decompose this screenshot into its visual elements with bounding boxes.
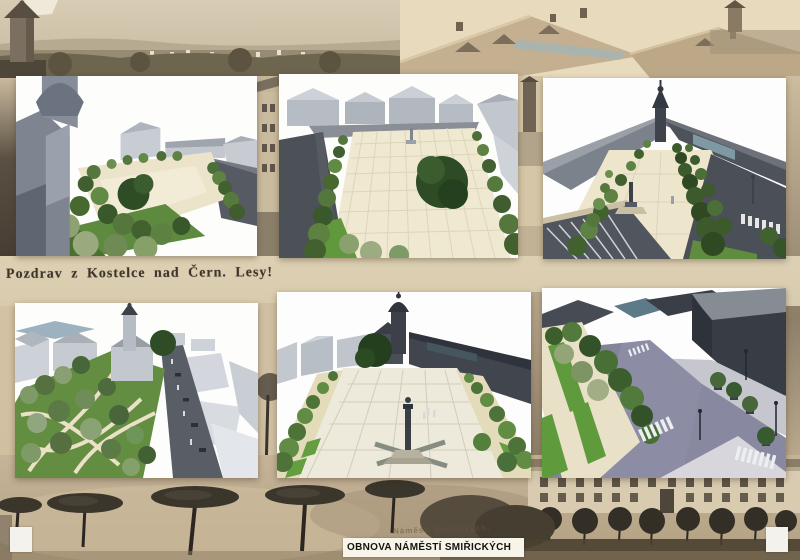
render-panel-top-center — [279, 74, 518, 258]
panel-3-illustration — [543, 78, 786, 259]
poster-title-label: OBNOVA NÁMĚSTÍ SMIŘICKÝCH — [343, 538, 524, 557]
white-patch-left — [10, 527, 32, 552]
panel-5-illustration — [277, 292, 531, 478]
render-panel-bottom-right — [542, 288, 786, 478]
render-panel-top-right — [543, 78, 786, 259]
white-patch-right — [766, 527, 788, 552]
background-tower-fragment — [518, 76, 543, 258]
render-panel-top-left — [16, 76, 257, 256]
panel-6-illustration — [542, 288, 786, 478]
poster-title: OBNOVA NÁMĚSTÍ SMIŘICKÝCH — [343, 542, 511, 553]
poster-board: Pozdrav z Kostelce nad Čern. Lesy! — [0, 0, 800, 560]
panel-1-illustration — [16, 76, 257, 256]
panel-4-illustration — [15, 303, 258, 478]
render-panel-bottom-left — [15, 303, 258, 478]
background-gap-fragment — [531, 292, 542, 478]
background-facade-fragment — [257, 76, 279, 258]
background-tree-fragment — [258, 303, 277, 478]
postcard-caption: Pozdrav z Kostelce nad Čern. Lesy! — [6, 265, 273, 283]
background-rooftops-photo — [400, 0, 800, 78]
background-left-fragment — [0, 78, 16, 258]
background-panorama-photo — [0, 0, 400, 78]
panel-2-illustration — [279, 74, 518, 258]
render-panel-bottom-center — [277, 292, 531, 478]
